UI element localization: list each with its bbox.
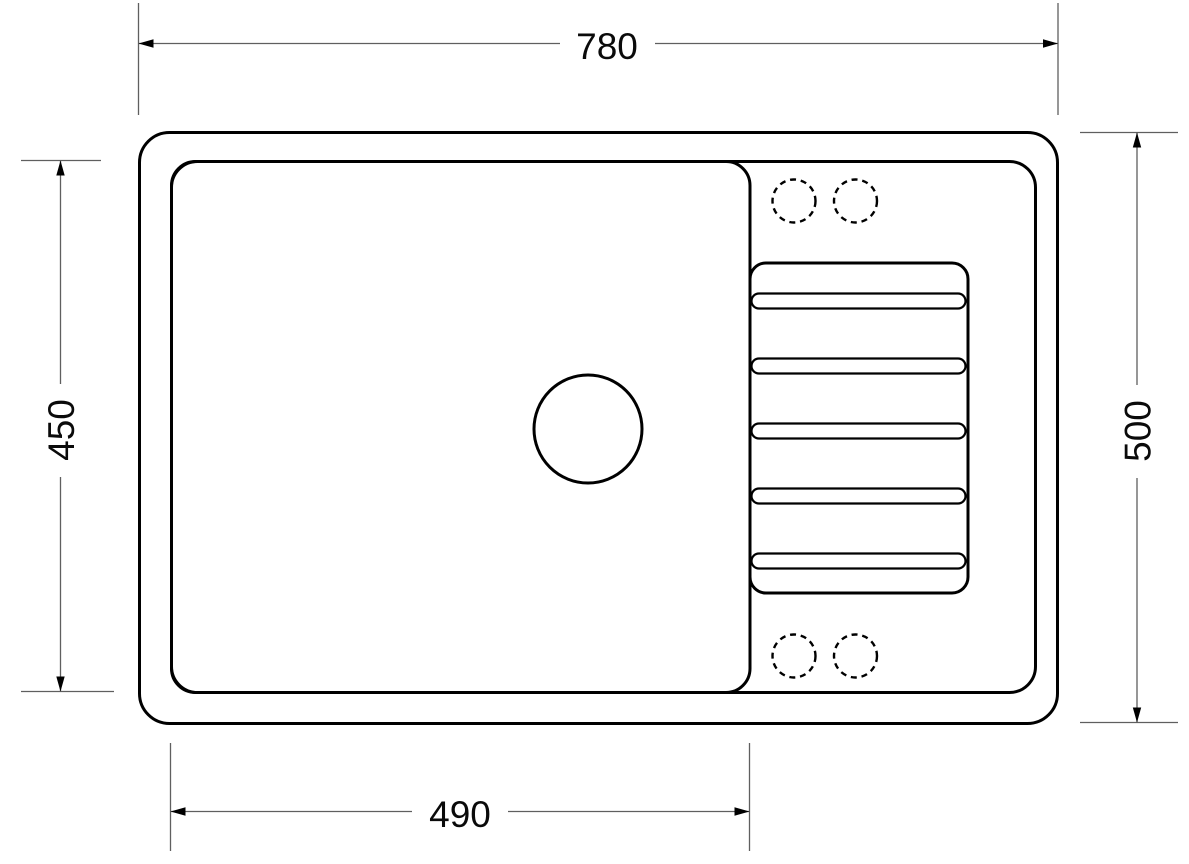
drainboard-group — [750, 263, 968, 593]
sink-bowl — [172, 162, 751, 693]
arrow-right-icon — [735, 807, 750, 815]
arrow-down-icon — [1133, 708, 1141, 723]
drainboard-rib — [752, 359, 966, 374]
drainboard-rib — [752, 424, 966, 439]
dimension-overall-depth: 500 — [1080, 133, 1178, 723]
sink-outer-edge — [140, 133, 1058, 724]
dimension-value-overall-depth: 500 — [1118, 400, 1159, 462]
dimension-value-bowl-depth: 450 — [41, 399, 82, 461]
tap-hole-top-left — [773, 180, 816, 223]
sink-inner-rim — [172, 162, 1036, 693]
drawing-canvas: 780 450 500 — [0, 0, 1189, 864]
tap-holes-group — [773, 180, 878, 678]
sink-technical-drawing: 780 450 500 — [0, 0, 1189, 864]
sink-outline-group — [140, 133, 1058, 724]
tap-hole-bottom-right — [834, 635, 877, 678]
drainboard-rib — [752, 554, 966, 569]
arrow-right-icon — [1043, 39, 1058, 47]
drainboard-panel — [750, 263, 968, 593]
dimension-bowl-depth: 450 — [21, 161, 114, 692]
dimension-value-bowl-width: 490 — [429, 794, 491, 835]
arrow-left-icon — [139, 39, 154, 47]
arrow-up-icon — [56, 161, 64, 176]
dimension-value-overall-width: 780 — [576, 26, 638, 67]
drain-hole — [534, 375, 642, 483]
drainboard-rib — [752, 489, 966, 504]
dimension-bowl-width: 490 — [171, 743, 750, 851]
dimension-overall-width: 780 — [139, 3, 1059, 115]
tap-hole-top-right — [834, 180, 877, 223]
arrow-up-icon — [1133, 133, 1141, 148]
arrow-left-icon — [171, 807, 186, 815]
tap-hole-bottom-left — [773, 635, 816, 678]
arrow-down-icon — [56, 677, 64, 692]
drainboard-rib — [752, 294, 966, 309]
